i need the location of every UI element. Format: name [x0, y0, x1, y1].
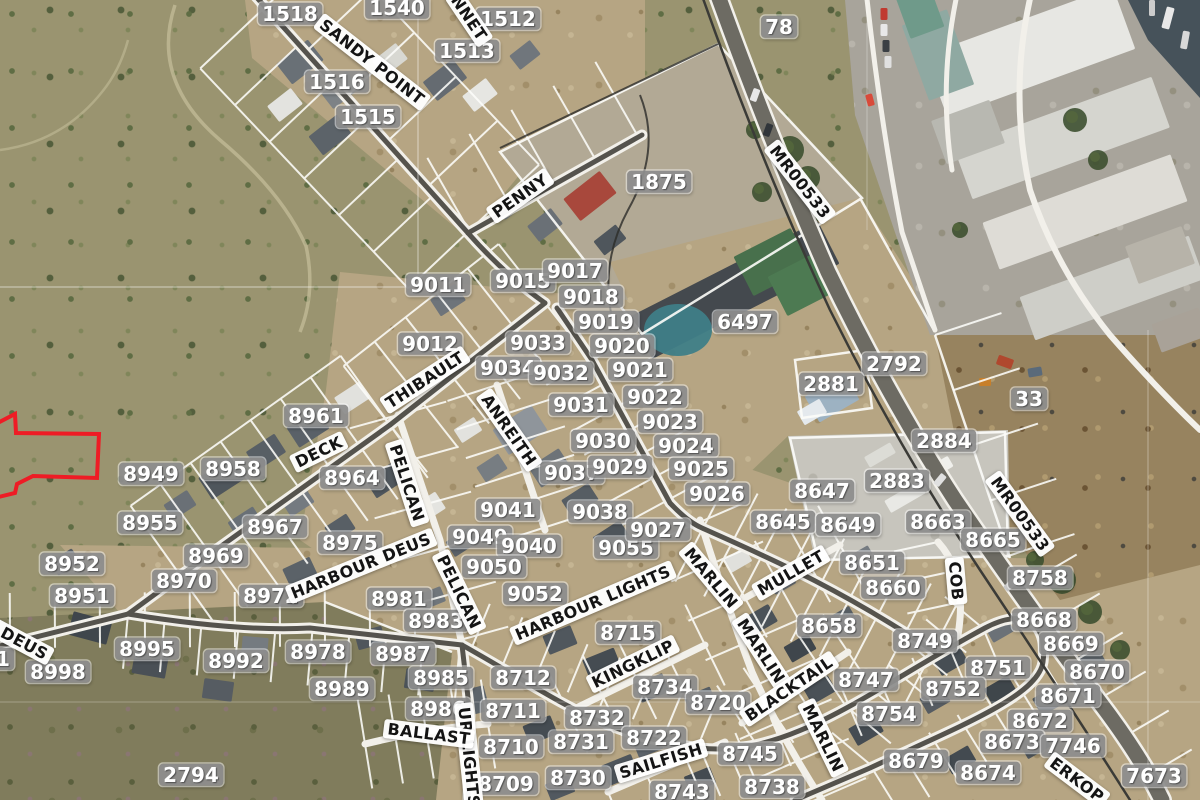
- parcel-label-8649: 8649: [816, 514, 880, 536]
- parcel-label-9011: 9011: [406, 274, 470, 296]
- parcel-label-2881: 2881: [799, 373, 863, 395]
- parcel-label-8758: 8758: [1008, 567, 1072, 589]
- parcel-label-8752: 8752: [921, 678, 985, 700]
- parcel-label-9020: 9020: [590, 335, 654, 357]
- parcel-label-9018: 9018: [559, 286, 623, 308]
- parcel-label-8663: 8663: [906, 511, 970, 533]
- parcel-label-8747: 8747: [834, 669, 898, 691]
- parcel-label-7673: 7673: [1122, 765, 1186, 787]
- map-labels-layer: 1518154015121513151615157818759011901590…: [0, 0, 1200, 800]
- parcel-label-8952: 8952: [40, 553, 104, 575]
- street-label-mr00533: MR00533: [763, 139, 837, 226]
- parcel-label-8710: 8710: [479, 736, 543, 758]
- parcel-label-8987: 8987: [371, 643, 435, 665]
- parcel-label-78: 78: [761, 16, 797, 38]
- parcel-label-8669: 8669: [1039, 633, 1103, 655]
- parcel-label-1: 1: [0, 648, 14, 670]
- street-label-mullet: MULLET: [751, 544, 832, 602]
- parcel-label-8951: 8951: [50, 585, 114, 607]
- parcel-label-8958: 8958: [201, 458, 265, 480]
- parcel-label-1513: 1513: [435, 40, 499, 62]
- parcel-label-6497: 6497: [713, 311, 777, 333]
- parcel-label-8743: 8743: [650, 781, 714, 800]
- parcel-label-9029: 9029: [588, 456, 652, 478]
- parcel-label-9030: 9030: [571, 430, 635, 452]
- parcel-label-9017: 9017: [543, 260, 607, 282]
- parcel-label-1875: 1875: [627, 171, 691, 193]
- parcel-label-8712: 8712: [491, 667, 555, 689]
- parcel-label-8732: 8732: [565, 707, 629, 729]
- parcel-label-8674: 8674: [956, 762, 1020, 784]
- parcel-label-9019: 9019: [574, 311, 638, 333]
- parcel-label-8749: 8749: [893, 630, 957, 652]
- parcel-label-9027: 9027: [626, 519, 690, 541]
- parcel-label-8985: 8985: [409, 667, 473, 689]
- parcel-label-8731: 8731: [549, 731, 613, 753]
- parcel-label-8660: 8660: [861, 577, 925, 599]
- parcel-label-9032: 9032: [529, 362, 593, 384]
- parcel-label-1518: 1518: [258, 3, 322, 25]
- parcel-label-9031: 9031: [549, 394, 613, 416]
- street-label-marlin: MARLIN: [678, 541, 745, 616]
- parcel-label-9025: 9025: [669, 458, 733, 480]
- street-label-marlin: MARLIN: [797, 697, 850, 778]
- parcel-label-8658: 8658: [797, 615, 861, 637]
- aerial-map-canvas[interactable]: 1518154015121513151615157818759011901590…: [0, 0, 1200, 800]
- parcel-label-9050: 9050: [462, 556, 526, 578]
- street-label-blacktail: BLACKTAIL: [738, 650, 840, 727]
- parcel-label-9026: 9026: [685, 483, 749, 505]
- parcel-label-8989: 8989: [310, 678, 374, 700]
- parcel-label-8668: 8668: [1012, 609, 1076, 631]
- parcel-label-9038: 9038: [568, 501, 632, 523]
- parcel-label-8647: 8647: [790, 480, 854, 502]
- parcel-label-8754: 8754: [857, 703, 921, 725]
- street-label-penny: PENNY: [485, 168, 555, 225]
- parcel-label-9033: 9033: [506, 332, 570, 354]
- parcel-label-1515: 1515: [336, 106, 400, 128]
- parcel-label-8671: 8671: [1036, 685, 1100, 707]
- parcel-label-8673: 8673: [980, 731, 1044, 753]
- parcel-label-8978: 8978: [286, 641, 350, 663]
- parcel-label-9052: 9052: [503, 583, 567, 605]
- parcel-label-8651: 8651: [840, 552, 904, 574]
- parcel-label-8745: 8745: [718, 743, 782, 765]
- parcel-label-33: 33: [1011, 388, 1047, 410]
- street-label-anreith: ANREITH: [475, 387, 543, 472]
- parcel-label-8967: 8967: [243, 516, 307, 538]
- parcel-label-8715: 8715: [596, 622, 660, 644]
- parcel-label-8961: 8961: [284, 405, 348, 427]
- parcel-label-2792: 2792: [862, 353, 926, 375]
- parcel-label-8998: 8998: [26, 661, 90, 683]
- parcel-label-8969: 8969: [184, 545, 248, 567]
- parcel-label-8665: 8665: [961, 529, 1025, 551]
- parcel-label-8670: 8670: [1065, 661, 1129, 683]
- parcel-label-2884: 2884: [912, 430, 976, 452]
- parcel-label-8970: 8970: [152, 570, 216, 592]
- parcel-label-9021: 9021: [608, 359, 672, 381]
- parcel-label-2883: 2883: [865, 470, 929, 492]
- parcel-label-8738: 8738: [740, 776, 804, 798]
- parcel-label-2794: 2794: [159, 764, 223, 786]
- parcel-label-8995: 8995: [115, 638, 179, 660]
- parcel-label-9024: 9024: [654, 435, 718, 457]
- parcel-label-8645: 8645: [751, 511, 815, 533]
- parcel-label-1540: 1540: [365, 0, 429, 19]
- parcel-label-8709: 8709: [474, 773, 538, 795]
- street-label-cob: COB: [944, 557, 967, 606]
- parcel-label-8711: 8711: [481, 700, 545, 722]
- parcel-label-9023: 9023: [638, 411, 702, 433]
- parcel-label-1516: 1516: [305, 71, 369, 93]
- street-label-marlin: MARLIN: [731, 612, 791, 691]
- street-label-erkop: ERKOP: [1043, 751, 1111, 800]
- street-label-sandy-point: SANDY POINT: [313, 13, 432, 112]
- street-label-pelican: PELICAN: [384, 438, 429, 527]
- parcel-label-8964: 8964: [320, 467, 384, 489]
- parcel-label-9022: 9022: [623, 386, 687, 408]
- parcel-label-8955: 8955: [118, 512, 182, 534]
- parcel-label-8981: 8981: [367, 588, 431, 610]
- parcel-label-8730: 8730: [546, 767, 610, 789]
- parcel-label-8949: 8949: [119, 463, 183, 485]
- parcel-label-9041: 9041: [476, 499, 540, 521]
- parcel-label-8679: 8679: [884, 750, 948, 772]
- parcel-label-8992: 8992: [204, 650, 268, 672]
